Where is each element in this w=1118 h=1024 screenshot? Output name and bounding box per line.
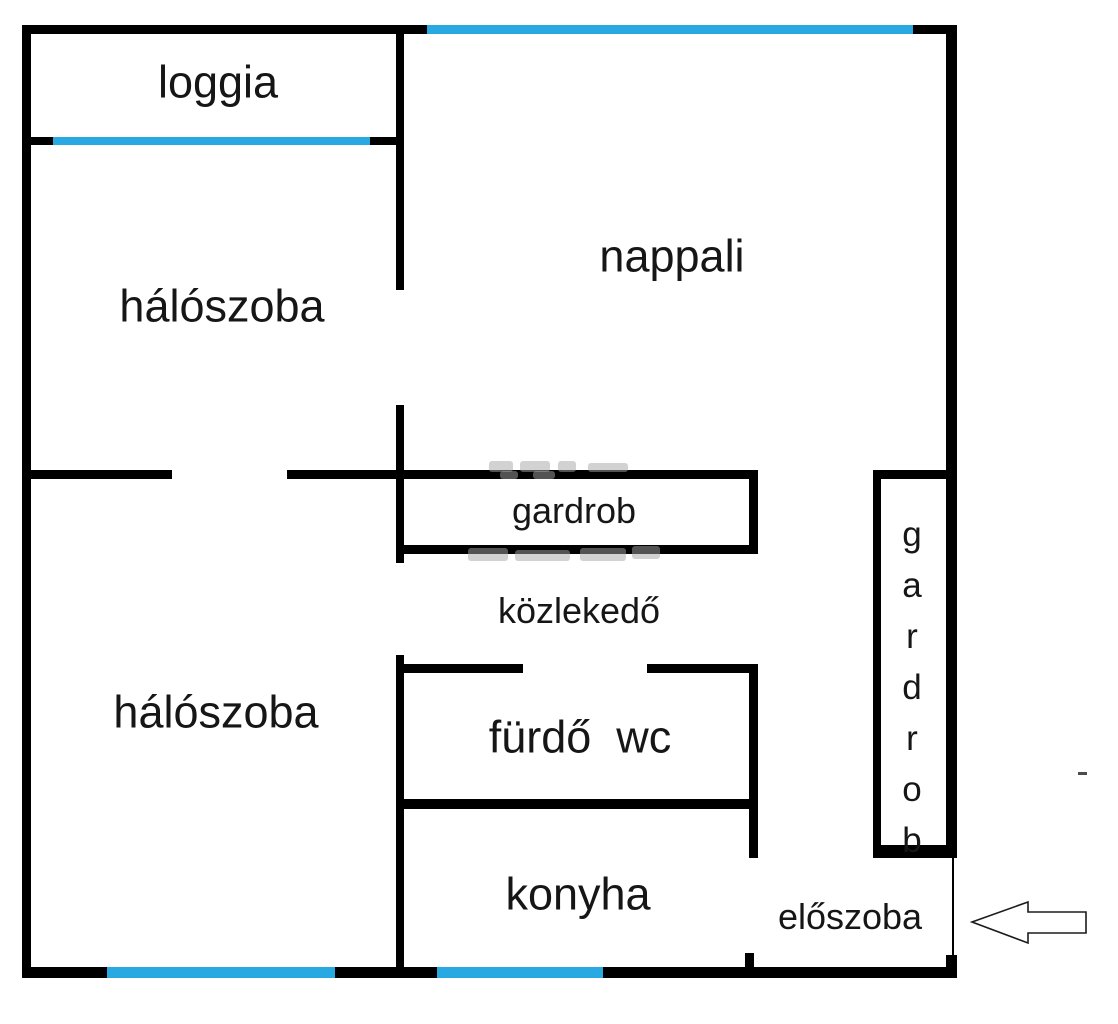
- watermark-fragment: [632, 546, 660, 559]
- room-label-haloszoba-top: hálószoba: [119, 284, 324, 329]
- room-label-furdo-wc: fürdő wc: [489, 715, 672, 760]
- entrance-opening-line: [952, 857, 954, 958]
- watermark-fragment: [533, 471, 555, 479]
- window-nappali-top: [427, 25, 913, 34]
- entrance-arrow-icon: [964, 894, 1092, 950]
- room-label-eloszoba: előszoba: [778, 899, 922, 935]
- room-label-nappali: nappali: [599, 234, 744, 279]
- watermark-fragment: [588, 463, 628, 472]
- wall-outer-left: [22, 25, 31, 978]
- room-label-loggia: loggia: [158, 60, 278, 105]
- watermark-fragment: [580, 548, 626, 561]
- wall-gardrob-mid-right: [749, 470, 758, 553]
- wall-furdo-right: [749, 664, 758, 858]
- watermark-fragment: [468, 548, 508, 561]
- window-loggia: [53, 137, 370, 145]
- wall-furdo-konyha-divider: [396, 799, 758, 809]
- room-label-kozlekedo: közlekedő: [498, 593, 660, 629]
- wall-furdo-top-right: [647, 664, 758, 673]
- wall-gardrob-right-left: [873, 470, 881, 857]
- wall-furdo-top-left: [396, 664, 523, 673]
- floorplan-canvas: loggia nappali hálószoba hálószoba gardr…: [0, 0, 1118, 1024]
- room-label-haloszoba-bottom: hálószoba: [113, 690, 318, 735]
- stray-mark: [1078, 772, 1087, 775]
- wall-outer-right-bottom-stub: [946, 955, 957, 978]
- wall-outer-right: [946, 25, 957, 857]
- wall-divider-middle: [396, 405, 404, 563]
- window-haloszoba-bottom: [107, 967, 335, 978]
- wall-divider-lower: [396, 655, 404, 967]
- wall-gardrob-right-top: [873, 470, 957, 479]
- wall-gardrob-mid-bottom: [396, 545, 758, 554]
- watermark-fragment: [515, 550, 570, 561]
- room-label-gardrob-middle: gardrob: [512, 493, 636, 529]
- wall-divider-upper: [396, 28, 404, 290]
- wall-loggia-left-stub: [26, 137, 56, 145]
- room-label-konyha: konyha: [505, 872, 650, 917]
- wall-mid-left: [26, 470, 172, 479]
- room-label-gardrob-right: gardrob: [895, 515, 930, 872]
- wall-konyha-eloszoba-stub: [745, 953, 754, 968]
- watermark-fragment: [500, 471, 518, 479]
- window-konyha: [437, 967, 603, 978]
- watermark-fragment: [558, 461, 576, 472]
